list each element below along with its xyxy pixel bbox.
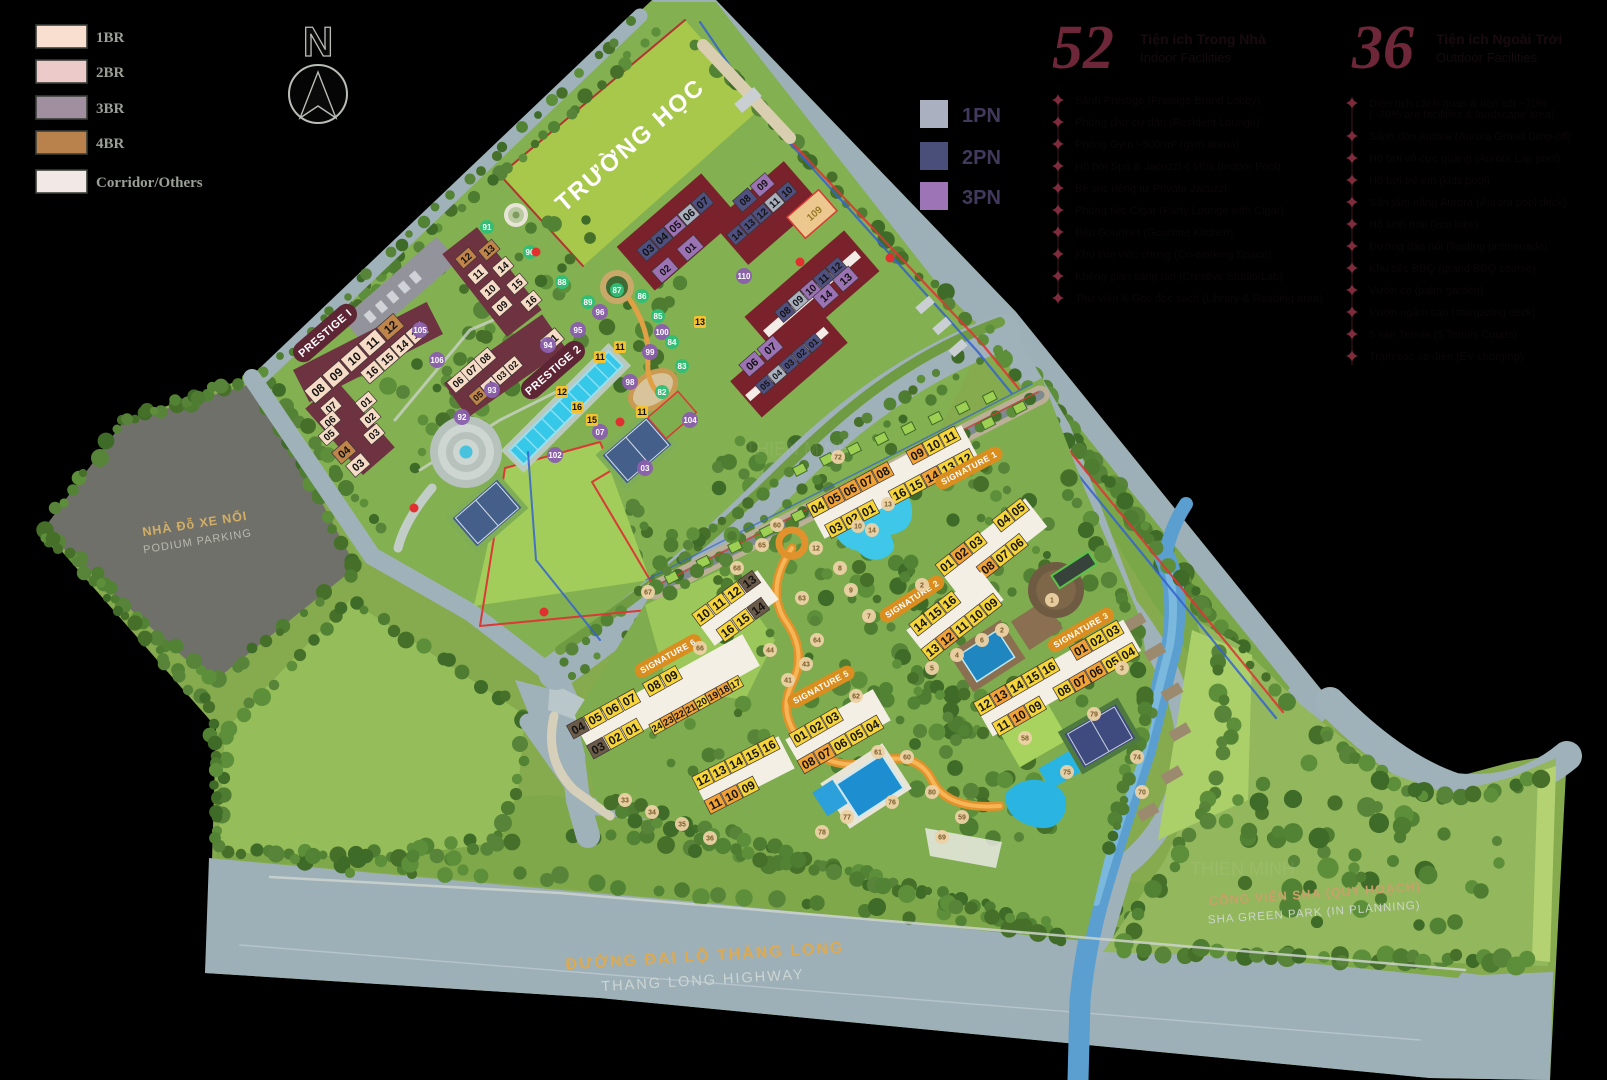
svg-text:77: 77 [843,814,851,821]
svg-text:43: 43 [802,661,810,668]
svg-text:76: 76 [888,799,896,806]
svg-text:N: N [303,18,333,65]
svg-text:Trạm sạc xe điện (EV charging): Trạm sạc xe điện (EV charging) [1369,351,1523,363]
svg-text:Sân tắm nắng Aurora (Aurora po: Sân tắm nắng Aurora (Aurora pool deck) [1369,196,1567,209]
svg-text:16: 16 [572,402,582,412]
svg-text:63: 63 [798,595,806,602]
svg-text:2PN: 2PN [962,147,1001,169]
svg-text:52: 52 [1052,14,1114,82]
svg-text:88: 88 [558,278,567,287]
svg-text:11: 11 [595,352,605,362]
svg-text:Phòng tiệc Cigar (Party Lounge: Phòng tiệc Cigar (Party Lounge with Ciga… [1075,205,1284,217]
svg-text:64: 64 [813,637,821,644]
svg-text:Vườn cọ (palm garden): Vườn cọ (palm garden) [1369,285,1483,297]
svg-text:36: 36 [1351,14,1414,82]
svg-text:106: 106 [430,356,444,365]
svg-text:70: 70 [1138,789,1146,796]
svg-text:1BR: 1BR [96,30,125,46]
svg-text:Phòng chờ cư dân (Resident Lou: Phòng chờ cư dân (Resident Lounge) [1075,117,1260,129]
svg-text:33: 33 [621,797,629,804]
svg-text:Thư viện & Góc đọc sách (Libra: Thư viện & Góc đọc sách (Library & Readi… [1075,293,1323,305]
svg-text:110: 110 [738,272,751,281]
svg-text:95: 95 [574,326,583,335]
svg-text:74: 74 [1133,754,1141,761]
svg-text:98: 98 [626,378,635,387]
svg-text:100: 100 [655,328,669,337]
svg-text:84: 84 [668,338,677,347]
svg-text:12: 12 [812,545,820,552]
svg-text:Hồ bơi Spa & Jacuzzi 4 Mùa (In: Hồ bơi Spa & Jacuzzi 4 Mùa (Indoor Pool) [1075,161,1281,173]
svg-text:14: 14 [868,527,876,534]
svg-text:3: 3 [1120,665,1124,672]
svg-text:99: 99 [646,348,655,357]
svg-text:89: 89 [584,298,593,307]
svg-text:6: 6 [980,637,984,644]
svg-text:Bếp Gourmet (Gourmet Kitchen): Bếp Gourmet (Gourmet Kitchen) [1075,227,1233,239]
svg-text:66: 66 [696,645,704,652]
svg-text:4BR: 4BR [96,136,125,152]
svg-text:Hồ bơi trẻ em (kids pool): Hồ bơi trẻ em (kids pool) [1369,175,1490,187]
svg-text:60: 60 [903,754,911,761]
svg-text:3BR: 3BR [96,101,125,117]
svg-text:Hồ sinh thái (eco lake): Hồ sinh thái (eco lake) [1369,219,1478,231]
svg-text:68: 68 [733,565,741,572]
svg-text:41: 41 [784,677,792,684]
svg-text:Đường dạo nổi (floating promen: Đường dạo nổi (floating promenade) [1369,241,1547,253]
svg-text:80: 80 [928,789,936,796]
svg-text:67: 67 [644,589,652,596]
svg-text:102: 102 [548,451,562,460]
svg-text:Phòng Gym ~500 m² (gym arena): Phòng Gym ~500 m² (gym arena) [1075,139,1239,151]
svg-text:(~70% are facilities & landsca: (~70% are facilities & landscape area) [1369,109,1555,121]
svg-text:Indoor Facilities: Indoor Facilities [1140,50,1232,65]
svg-text:87: 87 [613,286,622,295]
svg-text:Không gian sáng tạo (Creative: Không gian sáng tạo (Creative Studio/Lab… [1075,271,1283,283]
svg-text:Bể sục riêng tư Private Jacuzz: Bể sục riêng tư Private Jacuzzi [1075,183,1227,195]
svg-text:69: 69 [938,834,946,841]
svg-text:75: 75 [1063,769,1071,776]
svg-text:82: 82 [658,388,667,397]
svg-text:34: 34 [648,809,656,816]
svg-text:2: 2 [920,582,924,589]
svg-text:65: 65 [758,542,766,549]
svg-text:Sảnh đón Aurora (Aurora Grand: Sảnh đón Aurora (Aurora Grand Drop-off) [1369,131,1571,143]
svg-text:13: 13 [884,501,892,508]
svg-text:2BR: 2BR [96,65,125,81]
svg-text:1PN: 1PN [962,105,1001,127]
svg-text:2: 2 [1000,627,1004,634]
svg-text:Khu làm việc chung (Co-working: Khu làm việc chung (Co-working Space) [1075,249,1271,261]
svg-text:9: 9 [849,587,853,594]
svg-text:5: 5 [930,665,934,672]
svg-text:Tiện ích Ngoài Trời: Tiện ích Ngoài Trời [1436,31,1562,47]
svg-text:Tiện ích Trong Nhà: Tiện ích Trong Nhà [1140,31,1266,47]
svg-text:79: 79 [1090,711,1098,718]
svg-text:3PN: 3PN [962,187,1001,209]
svg-text:Corridor/Others: Corridor/Others [96,175,203,191]
svg-text:94: 94 [544,341,553,350]
svg-text:58: 58 [1021,735,1029,742]
svg-text:THIEN MINH: THIEN MINH [1190,859,1295,879]
svg-text:Vườn ngắm sao (stargazing deck: Vườn ngắm sao (stargazing deck) [1369,306,1536,319]
svg-text:92: 92 [458,413,467,422]
svg-text:03: 03 [641,464,650,473]
svg-text:4: 4 [955,652,959,659]
svg-text:7: 7 [867,613,871,620]
svg-text:35: 35 [678,821,686,828]
svg-text:60: 60 [773,522,781,529]
svg-text:36: 36 [706,835,714,842]
svg-text:13: 13 [695,317,705,327]
svg-text:07: 07 [596,428,605,437]
svg-text:Sảnh Prestige (Prestige Brand: Sảnh Prestige (Prestige Brand Lobby) [1075,95,1260,107]
svg-text:105: 105 [413,326,427,335]
svg-text:104: 104 [683,416,697,425]
svg-text:15: 15 [587,415,597,425]
svg-text:86: 86 [638,292,647,301]
svg-text:5 sân Tennis (5 Tennis Courts): 5 sân Tennis (5 Tennis Courts) [1369,329,1517,341]
svg-text:8: 8 [838,565,842,572]
svg-text:11: 11 [637,407,647,417]
svg-text:62: 62 [852,693,860,700]
svg-text:1: 1 [1050,597,1054,604]
svg-text:10: 10 [854,523,862,530]
svg-text:11: 11 [615,342,625,352]
svg-text:44: 44 [766,647,774,654]
svg-text:61: 61 [874,749,882,756]
svg-text:12: 12 [557,387,567,397]
svg-text:85: 85 [654,312,663,321]
svg-text:Khu tiệc BBQ (grand BBQ course: Khu tiệc BBQ (grand BBQ course) [1369,263,1536,275]
svg-text:Hồ bơi vô cực quang (Aurora La: Hồ bơi vô cực quang (Aurora Lap pool) [1369,153,1560,165]
svg-text:91: 91 [483,223,492,232]
svg-text:Outdoor Facilities: Outdoor Facilities [1436,50,1538,65]
svg-text:93: 93 [488,386,497,395]
svg-text:78: 78 [818,829,826,836]
svg-text:59: 59 [958,814,966,821]
svg-text:83: 83 [678,362,687,371]
svg-text:96: 96 [596,308,605,317]
svg-text:THIEN MINH: THIEN MINH [745,439,850,459]
